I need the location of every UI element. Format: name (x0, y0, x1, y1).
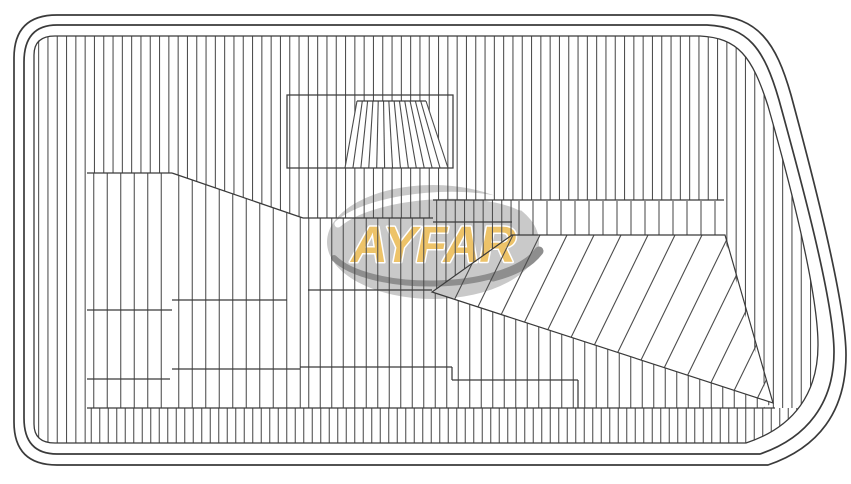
headlamp-lens-drawing: AYFAR (0, 0, 851, 484)
hatch-region-mid-left-a (94, 173, 162, 408)
logo-text: AYFAR (349, 216, 516, 273)
hatch-region-mid-left-b (179, 173, 301, 408)
ayfar-logo: AYFAR (327, 185, 539, 299)
hatch-region-mid-tick-band (519, 201, 715, 235)
boundary-segment (172, 173, 303, 218)
flute-panel (287, 95, 453, 168)
hatch-region-bottom-band (91, 408, 797, 443)
lens-drawing-canvas: AYFAR (0, 0, 851, 484)
